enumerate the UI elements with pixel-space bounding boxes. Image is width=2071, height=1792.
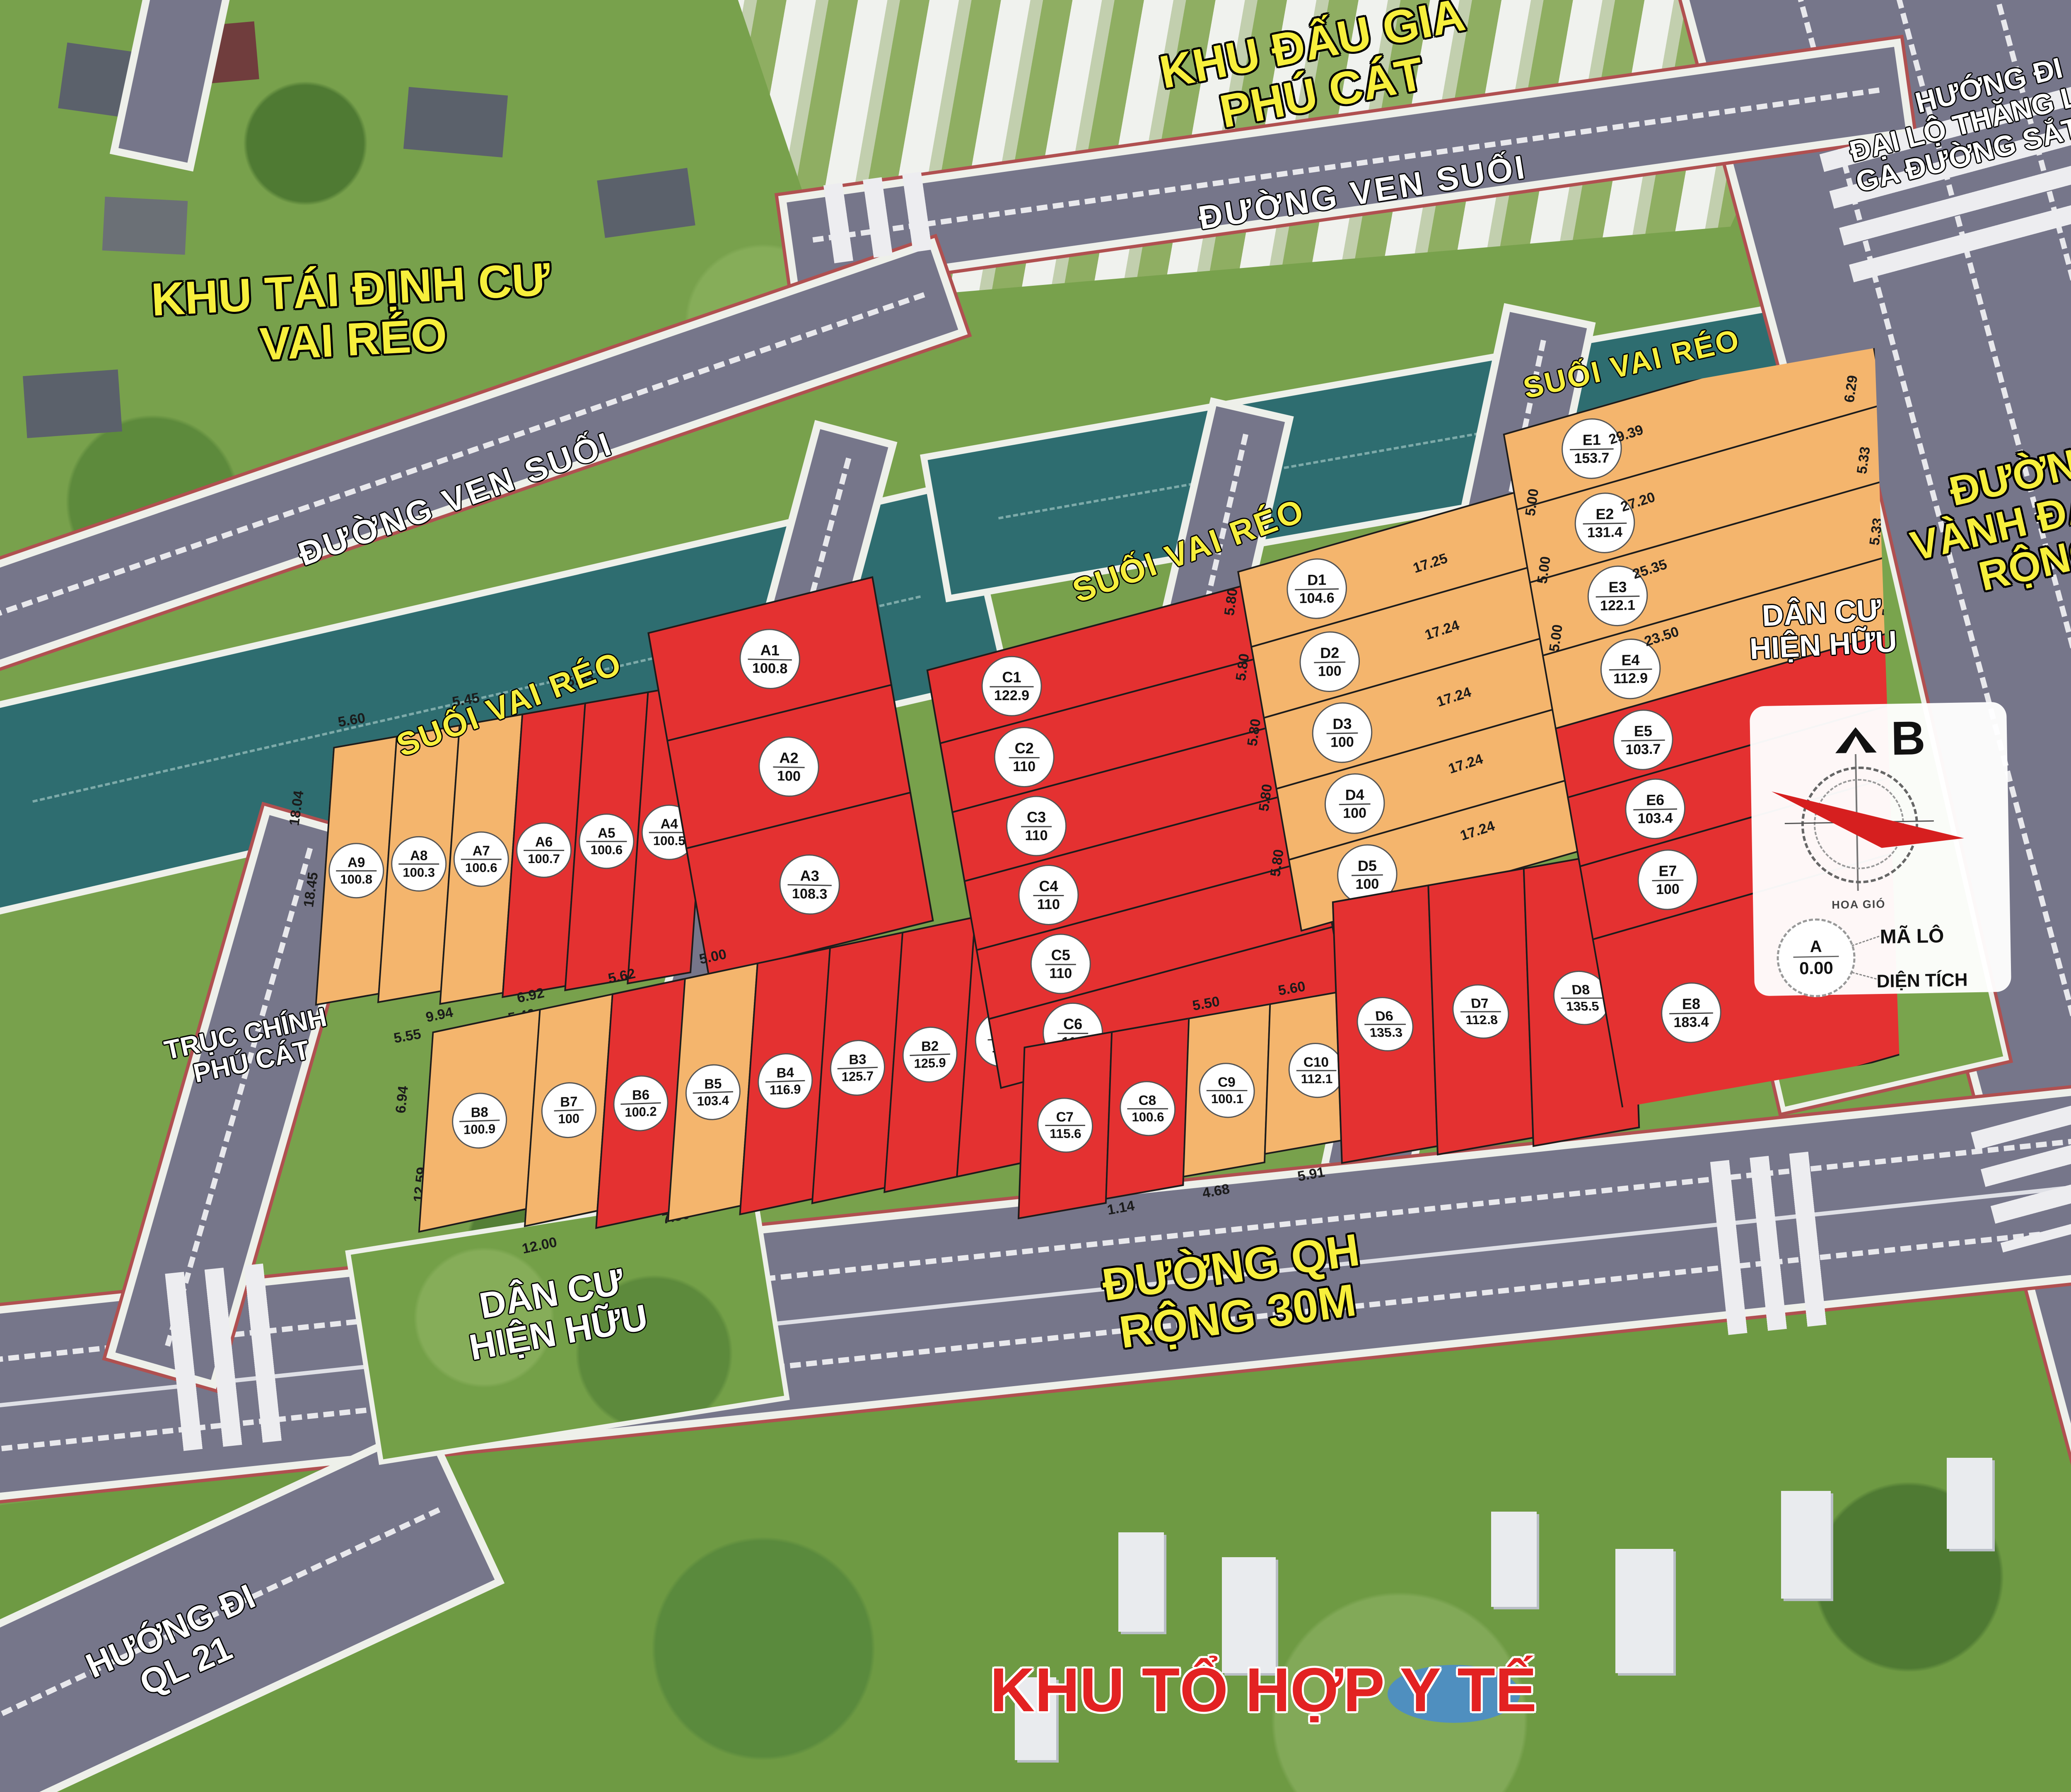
lot: C7115.6 [1018,1031,1113,1220]
dimension-label: 5.00 [1534,555,1554,585]
dimension-label: 18.45 [301,871,321,908]
lot-badge: B2125.9 [902,1026,957,1083]
dimension-label: 6.94 [393,1085,412,1114]
dimension-label: 5.80 [1244,718,1264,747]
lot-badge: D7112.8 [1450,984,1512,1039]
aerial-tower [1615,1549,1673,1673]
dimension-label: 17.24 [1446,751,1485,777]
lot-badge: B7100 [541,1081,596,1139]
dimension-label: 5.80 [1233,652,1253,682]
aerial-tower [1781,1491,1831,1599]
legend-sample-badge: A 0.00 [1776,918,1856,998]
dimension-label: 17.24 [1435,684,1473,710]
aerial-tower [1947,1458,1992,1549]
lot-badge: C4110 [1019,864,1079,925]
lot-badge: E5103.7 [1613,709,1673,771]
lot-badge: C3110 [1006,796,1067,856]
lot-badge: A1100.8 [739,628,800,690]
lot: D6135.3 [1332,884,1439,1164]
aerial-house [403,87,508,157]
lot-badge: A3108.3 [779,854,840,915]
crosswalk [1710,1150,1844,1335]
dimension-label: 5.00 [1522,487,1542,517]
dimension-label: 17.25 [1411,550,1450,576]
north-arrow-icon [1835,727,1877,753]
lot-badge: C2110 [994,727,1055,787]
lot-badge: D1104.6 [1287,558,1347,620]
legend-code-label: MÃ LÔ [1880,924,1944,948]
dimension-label: 6.29 [1841,374,1861,404]
lot-badge: D2100 [1300,631,1360,692]
lot: C8100.6 [1105,1018,1190,1200]
dimension-label: 27.20 [1619,489,1657,515]
dimension-label: 5.80 [1221,587,1241,617]
lot-badge: B5103.4 [685,1064,740,1121]
dimension-label: 17.24 [1423,617,1461,643]
lot: D7112.8 [1427,868,1534,1155]
aerial-tower [1491,1512,1537,1607]
lot-badge: A2100 [758,736,819,797]
aerial-tower [1118,1532,1164,1632]
legend-leader-line [1851,936,1879,946]
crosswalk [165,1262,299,1451]
dimension-label: 17.24 [1458,818,1497,844]
dimension-label: 5.80 [1256,783,1276,812]
lot-badge: D6135.3 [1354,997,1417,1052]
lot-badge: A6100.7 [516,822,572,878]
label-residential-area: DÂN CƯHIỆN HỮU [1747,593,1897,666]
crosswalk [823,171,933,263]
lot-badge: C8100.6 [1118,1081,1176,1136]
lot-badge: C7115.6 [1036,1097,1094,1153]
label-medical-area: KHU TỔ HỢP Y TẾ [990,1656,1537,1723]
legend-area-label: DIỆN TÍCH [1876,970,1968,992]
lot-badge: E6103.4 [1625,778,1685,839]
compass-caption: HOA GIÓ [1798,897,1919,912]
lot-badge: B6100.2 [613,1075,668,1132]
legend-box: B HOA GIÓ A 0.00 MÃ LÔ DIỆN TÍCH [1750,702,2011,996]
lot-badge: A9100.8 [328,843,384,898]
dimension-label: 5.33 [1854,446,1874,475]
lot-badge: A8100.3 [391,836,447,892]
dimension-label: 5.80 [1267,848,1287,878]
lot-badge: B4116.9 [758,1052,813,1110]
lot-badge: C1122.9 [982,656,1042,716]
lot-badge: A5100.6 [579,813,634,869]
aerial-house [23,369,122,438]
lot: B8100.9 [418,1008,541,1232]
north-letter: B [1890,711,1926,766]
master-plan-map: 5.605.455.35 18.0418.4518.85 5.555.405.3… [0,0,2071,1792]
lot-badge: E8183.4 [1661,982,1721,1044]
dimension-label: 18.04 [286,789,307,827]
label-resettlement-area: KHU TÁI ĐỊNH CƯVAI RÉO [150,254,554,375]
lot-badge: E7100 [1637,849,1698,910]
lot-badge: D3100 [1312,702,1373,764]
dimension-label: 23.50 [1642,624,1681,650]
dimension-label: 29.39 [1607,422,1645,448]
dimension-label: 25.35 [1631,556,1669,582]
lot-badge: C9100.1 [1198,1063,1256,1118]
dimension-label: 5.60 [337,710,367,731]
aerial-house [102,197,188,255]
lot-badge: C5110 [1031,933,1091,994]
dimension-label: 5.00 [1546,624,1566,653]
lot-badge: B8100.9 [452,1092,507,1149]
lot-badge: D4100 [1325,773,1385,834]
lot-badge: A7100.6 [454,832,509,887]
lot: C9100.1 [1183,1003,1271,1177]
lot-badge: B3125.7 [830,1039,885,1097]
